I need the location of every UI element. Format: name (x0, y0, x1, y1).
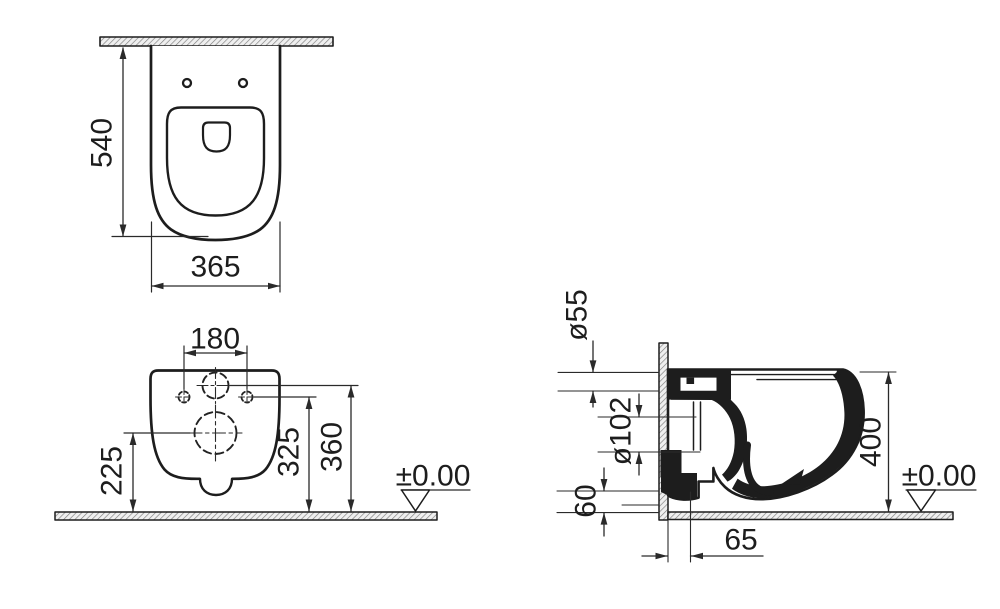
dim-180-label: 180 (190, 323, 240, 356)
arrow-up (306, 397, 313, 409)
dim-540-label: 540 (86, 118, 119, 168)
dim-400-label: 400 (855, 417, 888, 467)
level-triangle-icon (402, 490, 430, 511)
side-view-floor-section (668, 512, 953, 520)
dimension-inlet-height-360 (348, 386, 355, 512)
floor-level-symbol-side (906, 490, 976, 511)
front-view-floor-section (55, 512, 437, 520)
dimension-outlet-height-225 (130, 433, 137, 512)
flush-channel-tab (687, 378, 695, 384)
front-view: 180 225 325 360 ±0.00 (55, 323, 470, 521)
dim-o102-label: ø102 (605, 397, 638, 465)
seat-bolt-hole-left (183, 79, 191, 87)
floor-level-label-front: ±0.00 (396, 460, 471, 493)
dim-325-label: 325 (273, 427, 306, 477)
dimension-fixing-height-325 (306, 397, 313, 512)
arrow-up (120, 47, 127, 59)
floor-level-symbol-front (401, 490, 470, 511)
floor-level-label-side: ±0.00 (902, 460, 977, 493)
arrow-up (590, 391, 597, 403)
arrow-up (885, 372, 892, 384)
side-view: ø55 ø102 60 400 (557, 289, 976, 562)
top-view-wall-section (100, 37, 333, 46)
dim-365-label: 365 (190, 251, 240, 284)
dim-360-label: 360 (316, 422, 349, 472)
arrow-right (268, 283, 280, 289)
arrow-left (152, 283, 164, 289)
toilet-dimension-drawing: 540 365 (0, 0, 1000, 609)
top-view: 540 365 (86, 37, 334, 292)
seat-bolt-hole-right (239, 79, 247, 87)
arrow-down (590, 360, 597, 372)
arrow-down (120, 225, 127, 237)
arrow-down (130, 500, 137, 512)
top-view-flush-opening (203, 123, 230, 152)
dim-225-label: 225 (96, 446, 129, 496)
arrow-down (348, 500, 355, 512)
arrow-right (656, 553, 668, 559)
arrow-left (691, 553, 703, 559)
soil-pipe-section (661, 450, 682, 477)
arrow-down (306, 500, 313, 512)
level-triangle-icon (907, 490, 936, 511)
dim-60-label: 60 (570, 484, 603, 517)
technical-drawing-page: 540 365 (0, 0, 1000, 609)
dim-65-label: 65 (724, 524, 757, 557)
arrow-up (130, 433, 137, 445)
dim-o55-label: ø55 (561, 289, 594, 341)
arrow-down (885, 500, 892, 512)
arrow-up (348, 386, 355, 398)
side-view-body-outline (668, 370, 864, 500)
